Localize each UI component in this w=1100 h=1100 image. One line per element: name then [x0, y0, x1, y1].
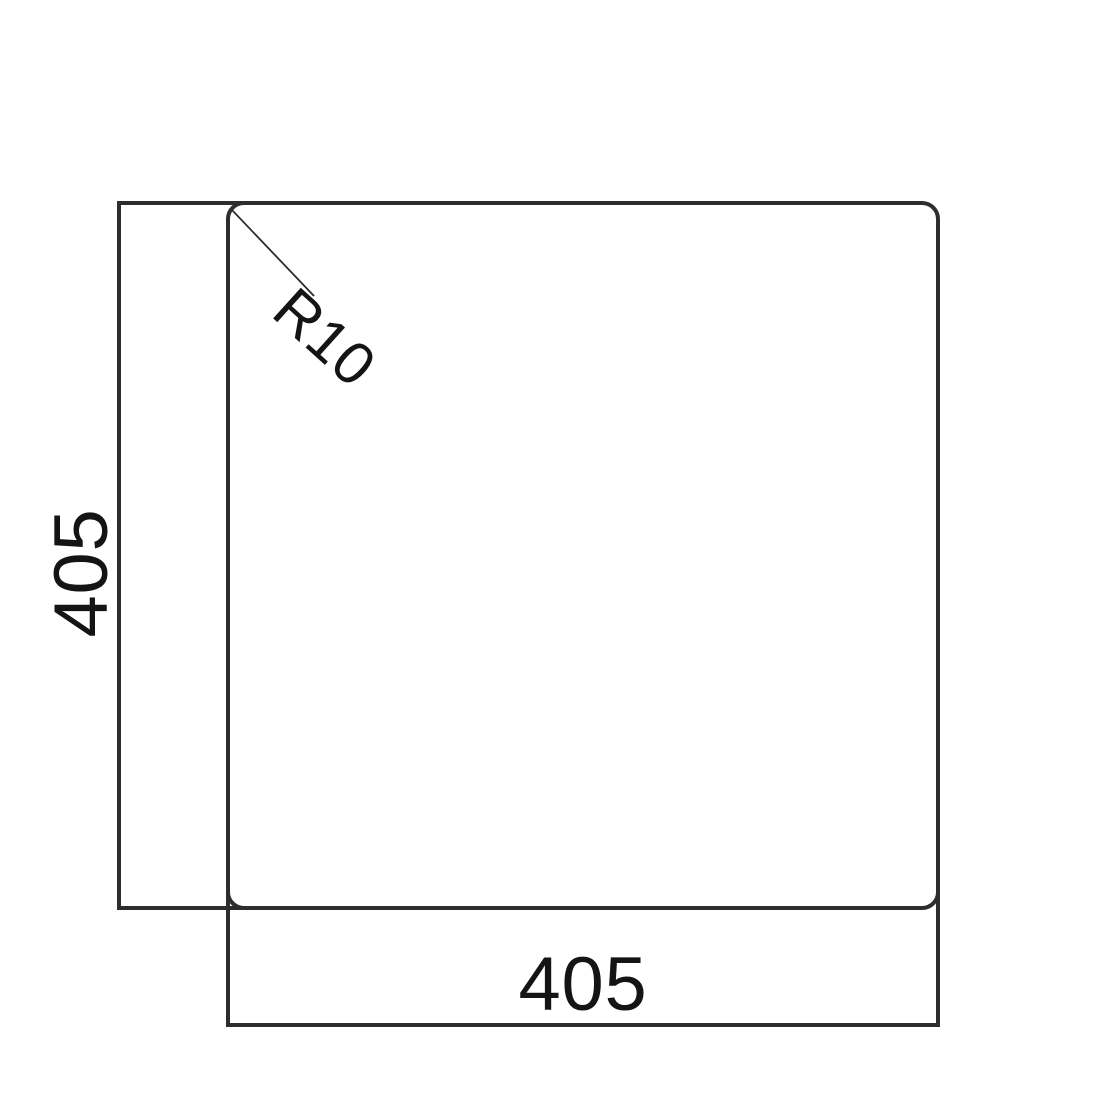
- width-dimension-label: 405: [513, 949, 653, 1021]
- height-dimension-label: 405: [46, 503, 118, 643]
- dimension-drawing: [0, 0, 1100, 1100]
- drawing-canvas: 405 405 R10: [0, 0, 1100, 1100]
